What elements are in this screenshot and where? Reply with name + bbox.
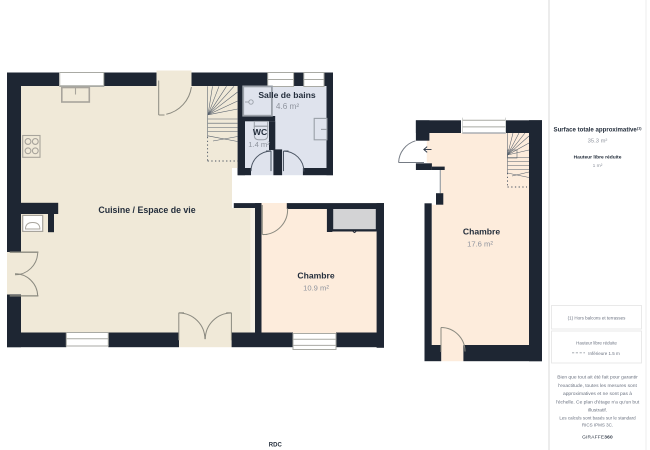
svg-text:approximatives et ne sont pas: approximatives et ne sont pas à xyxy=(563,391,632,397)
svg-text:(1) Hors balcons et terrasses: (1) Hors balcons et terrasses xyxy=(568,316,627,321)
svg-text:10.9 m²: 10.9 m² xyxy=(303,284,329,293)
svg-text:4.6 m²: 4.6 m² xyxy=(276,102,299,111)
svg-text:Les calculs sont basés sur le: Les calculs sont basés sur le standard xyxy=(559,416,636,421)
svg-text:Hauteur libre réduite: Hauteur libre réduite xyxy=(574,155,622,161)
svg-text:Chambre: Chambre xyxy=(463,227,500,237)
svg-text:Chambre: Chambre xyxy=(297,271,334,281)
svg-text:Cuisine / Espace de vie: Cuisine / Espace de vie xyxy=(98,205,195,215)
svg-text:35.3 m²: 35.3 m² xyxy=(588,139,608,145)
svg-text:GIRAFFE360: GIRAFFE360 xyxy=(582,434,613,440)
svg-text:1 m²: 1 m² xyxy=(593,163,603,169)
svg-text:Surface totale approximative(1: Surface totale approximative(1) xyxy=(554,127,643,134)
svg-text:RDC: RDC xyxy=(269,442,283,448)
svg-text:Salle de bains: Salle de bains xyxy=(258,90,316,100)
svg-text:RICS IPMS 3C.: RICS IPMS 3C. xyxy=(582,423,613,428)
svg-text:Bien que tout ait été fait pou: Bien que tout ait été fait pour garantir xyxy=(557,375,638,381)
svg-text:1.4 m²: 1.4 m² xyxy=(248,140,270,149)
svg-text:l'exactitude, toutes les mesur: l'exactitude, toutes les mesures sont xyxy=(558,383,637,389)
svg-text:illustratif.: illustratif. xyxy=(588,408,607,414)
svg-text:l'échelle. Ce plan d'étage n'a: l'échelle. Ce plan d'étage n'a qu'un but xyxy=(556,399,640,405)
svg-text:17.6 m²: 17.6 m² xyxy=(467,240,493,249)
svg-text:Hauteur libre réduite: Hauteur libre réduite xyxy=(576,341,617,346)
svg-text:WC: WC xyxy=(253,127,267,137)
svg-text:Inférieure 1.5 m: Inférieure 1.5 m xyxy=(588,351,620,356)
